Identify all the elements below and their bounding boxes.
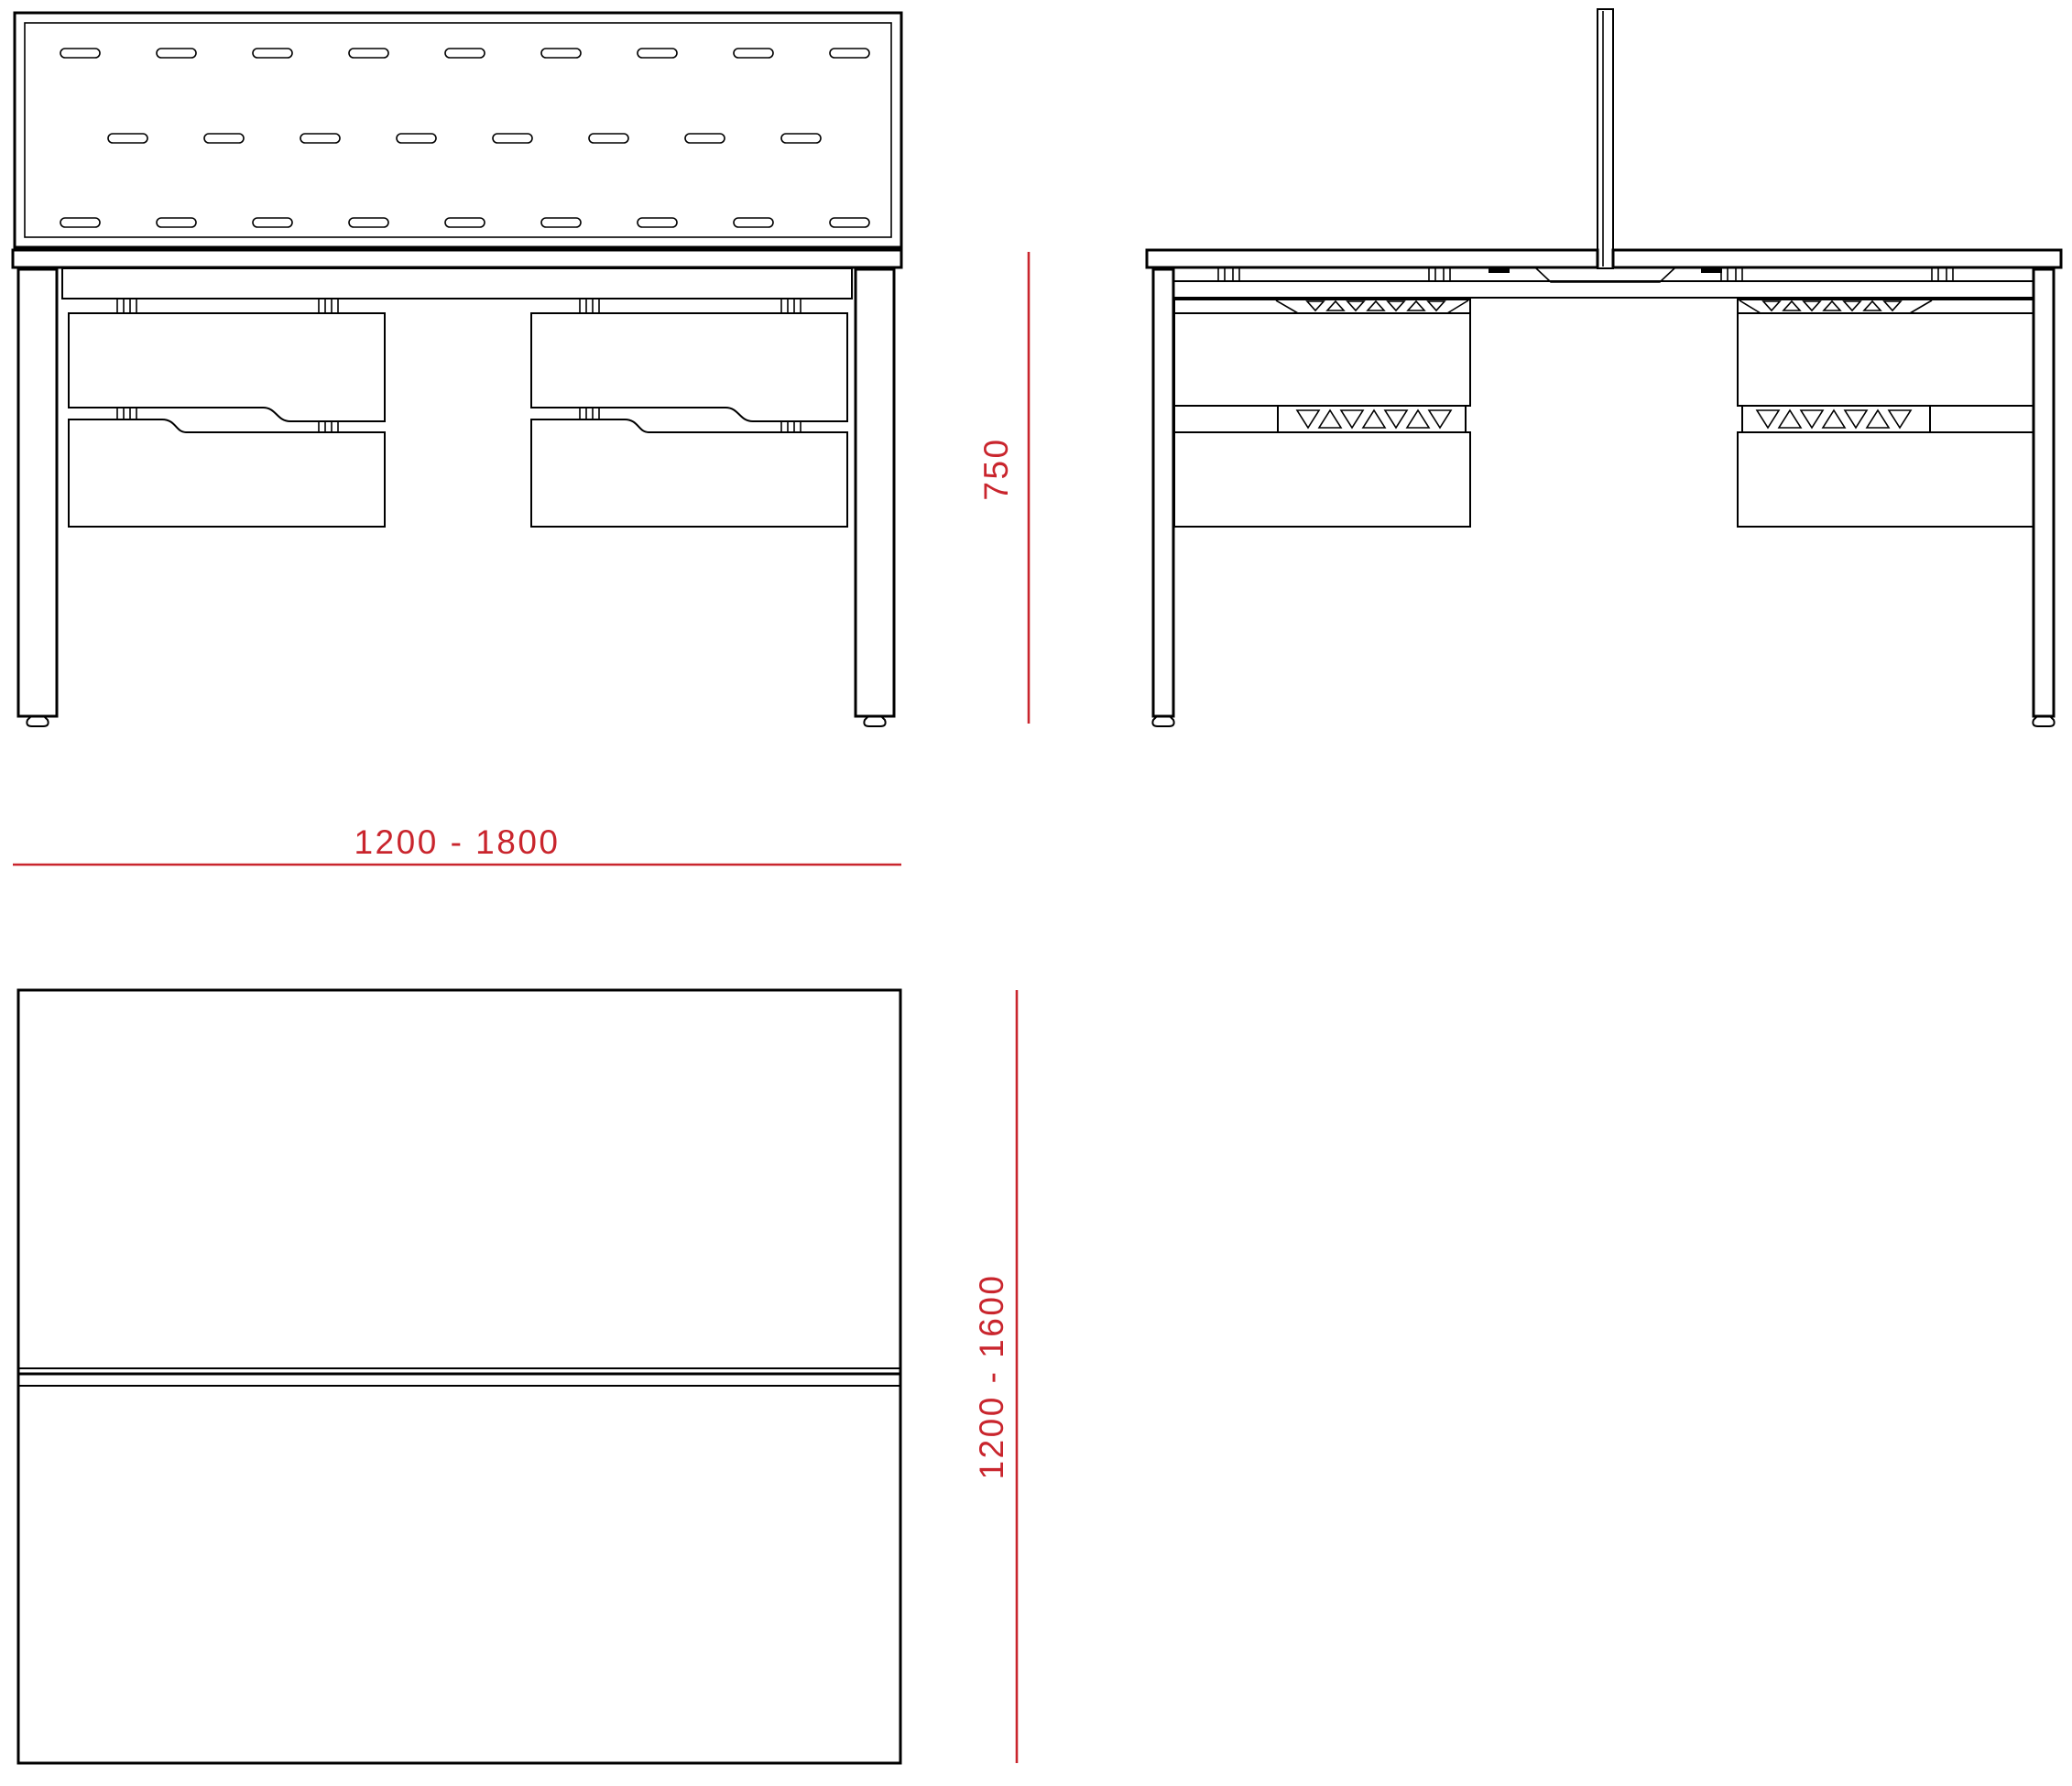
hanger-bracket bbox=[332, 299, 338, 313]
vent-triangle-down bbox=[1429, 410, 1451, 428]
drawer-bottom-front bbox=[69, 419, 385, 527]
hanger-bracket bbox=[593, 299, 599, 313]
vent-triangle-down bbox=[1804, 301, 1820, 310]
front-view bbox=[13, 13, 901, 726]
screen-slot bbox=[349, 218, 388, 227]
screen-inner-panel bbox=[25, 23, 891, 237]
side-view bbox=[1147, 9, 2061, 726]
hanger-bracket bbox=[130, 408, 136, 419]
screen-slot bbox=[638, 218, 677, 227]
screen-slot bbox=[300, 134, 340, 143]
foot-side-right bbox=[2033, 716, 2054, 726]
screen-slot bbox=[734, 49, 773, 58]
vent-triangle-down bbox=[1428, 301, 1445, 310]
handle-band-plain bbox=[1174, 406, 1278, 432]
vent-triangle-down bbox=[1763, 301, 1780, 310]
screen-slot bbox=[60, 218, 100, 227]
vent-triangle-down bbox=[1385, 410, 1407, 428]
clamp-bracket bbox=[1736, 267, 1742, 281]
vent-strip-bevel bbox=[1910, 300, 1932, 313]
screen-slot bbox=[108, 134, 147, 143]
vent-triangle-up bbox=[1823, 410, 1845, 428]
clamp-mark bbox=[1701, 267, 1722, 273]
drawer-bottom-side bbox=[1738, 432, 2034, 527]
screen-slot bbox=[445, 49, 485, 58]
leg-side-right bbox=[2034, 269, 2054, 716]
desk-technical-drawing: 1200 - 1800 750 1200 - 1600 bbox=[0, 0, 2072, 1786]
hanger-bracket bbox=[794, 299, 801, 313]
handle-band-plain bbox=[1930, 406, 2034, 432]
screen-slot bbox=[445, 218, 485, 227]
vent-triangle-down bbox=[1889, 410, 1911, 428]
foot-front-right bbox=[864, 716, 885, 726]
foot-front-left bbox=[27, 716, 48, 726]
hanger-bracket bbox=[580, 408, 586, 419]
drawing-canvas: 1200 - 1800 750 1200 - 1600 bbox=[0, 0, 2072, 1786]
screen-slot bbox=[638, 49, 677, 58]
vent-triangle-down bbox=[1347, 301, 1364, 310]
vent-triangle-down bbox=[1844, 301, 1860, 310]
clamp-bracket bbox=[1444, 267, 1450, 281]
screen-slot bbox=[541, 218, 581, 227]
screen-slot bbox=[60, 49, 100, 58]
vent-strip-bevel bbox=[1276, 300, 1298, 313]
clamp-mark bbox=[1489, 267, 1510, 273]
clamp-bracket bbox=[1218, 267, 1225, 281]
leg-front-left bbox=[18, 269, 57, 716]
screen-slot bbox=[830, 218, 869, 227]
pedestal-front-right bbox=[531, 299, 847, 527]
drawer-top-side bbox=[1174, 313, 1470, 406]
screen-slot bbox=[781, 134, 821, 143]
vent-triangles-large bbox=[1297, 410, 1451, 428]
cable-tray bbox=[1536, 268, 1674, 282]
vent-strip-bevel bbox=[1739, 300, 1761, 313]
under-desktop-brackets bbox=[1218, 267, 1953, 282]
drawer-bottom-side bbox=[1174, 432, 1470, 527]
screen-slot bbox=[541, 49, 581, 58]
screen-slot bbox=[830, 49, 869, 58]
frame-rail-side bbox=[1173, 281, 2034, 298]
drawer-top-side bbox=[1738, 313, 2034, 406]
screen-slot bbox=[349, 49, 388, 58]
vent-triangle-down bbox=[1757, 410, 1779, 428]
vent-triangle-up bbox=[1407, 410, 1429, 428]
apron-rail-front bbox=[62, 268, 852, 299]
screen-slot bbox=[734, 218, 773, 227]
privacy-screen-front bbox=[15, 13, 901, 247]
hanger-bracket bbox=[781, 299, 788, 313]
screen-panel-edge bbox=[1598, 9, 1613, 268]
hanger-bracket bbox=[332, 421, 338, 432]
hanger-bracket bbox=[117, 299, 124, 313]
screen-slot bbox=[685, 134, 725, 143]
vent-triangle-down bbox=[1801, 410, 1823, 428]
vent-triangle-up bbox=[1867, 410, 1889, 428]
privacy-screen-side bbox=[1598, 9, 1613, 268]
vent-triangle-up bbox=[1368, 301, 1384, 310]
clamp-bracket bbox=[1947, 267, 1953, 281]
clamp-bracket bbox=[1721, 267, 1728, 281]
vent-triangle-up bbox=[1408, 301, 1424, 310]
screen-slot bbox=[157, 218, 196, 227]
vent-triangle-down bbox=[1884, 301, 1901, 310]
clamp-bracket bbox=[1233, 267, 1239, 281]
dimensions: 1200 - 1800 750 1200 - 1600 bbox=[13, 252, 1029, 1763]
width-dimension-label: 1200 - 1800 bbox=[354, 823, 560, 861]
vent-triangle-down bbox=[1297, 410, 1319, 428]
leg-front-right bbox=[856, 269, 894, 716]
hanger-bracket bbox=[130, 299, 136, 313]
vent-triangle-up bbox=[1363, 410, 1385, 428]
clamp-bracket bbox=[1429, 267, 1435, 281]
vent-triangle-up bbox=[1779, 410, 1801, 428]
vent-triangle-up bbox=[1327, 301, 1344, 310]
foot-side-left bbox=[1152, 716, 1173, 726]
screen-slot bbox=[589, 134, 628, 143]
hanger-bracket bbox=[319, 299, 325, 313]
screen-slot bbox=[253, 49, 292, 58]
vent-triangles-large bbox=[1757, 410, 1911, 428]
vent-triangles-small bbox=[1307, 301, 1445, 310]
depth-dimension-label: 1200 - 1600 bbox=[973, 1273, 1010, 1479]
desktop-front bbox=[13, 250, 901, 267]
screen-slot bbox=[204, 134, 244, 143]
pedestal-side-left bbox=[1174, 299, 1470, 527]
hanger-bracket bbox=[117, 408, 124, 419]
vent-triangle-down bbox=[1845, 410, 1867, 428]
screen-slot bbox=[253, 218, 292, 227]
vent-triangle-up bbox=[1783, 301, 1800, 310]
vent-strip-bevel bbox=[1447, 300, 1468, 313]
screen-slot bbox=[397, 134, 436, 143]
hanger-bracket bbox=[580, 299, 586, 313]
plan-outline bbox=[18, 990, 900, 1763]
hanger-bracket bbox=[781, 421, 788, 432]
vent-triangle-down bbox=[1307, 301, 1324, 310]
vent-triangles-small bbox=[1763, 301, 1901, 310]
vent-triangle-up bbox=[1824, 301, 1840, 310]
pedestal-front-left bbox=[69, 299, 385, 527]
clamp-bracket bbox=[1932, 267, 1938, 281]
screen-slot bbox=[493, 134, 532, 143]
vent-triangle-up bbox=[1319, 410, 1341, 428]
top-view bbox=[18, 990, 900, 1763]
hanger-bracket bbox=[794, 421, 801, 432]
desktop-side-right bbox=[1613, 250, 2061, 267]
leg-side-left bbox=[1153, 269, 1173, 716]
screen-slot bbox=[157, 49, 196, 58]
hanger-bracket bbox=[593, 408, 599, 419]
drawer-top-front bbox=[531, 313, 847, 421]
pedestal-side-right bbox=[1738, 299, 2034, 527]
vent-triangle-down bbox=[1341, 410, 1363, 428]
hanger-bracket bbox=[319, 421, 325, 432]
height-dimension-label: 750 bbox=[977, 437, 1015, 500]
vent-triangle-down bbox=[1388, 301, 1404, 310]
drawer-top-front bbox=[69, 313, 385, 421]
desktop-side-left bbox=[1147, 250, 1598, 267]
drawer-bottom-front bbox=[531, 419, 847, 527]
screen-perforation-slots bbox=[60, 49, 869, 227]
vent-triangle-up bbox=[1864, 301, 1881, 310]
